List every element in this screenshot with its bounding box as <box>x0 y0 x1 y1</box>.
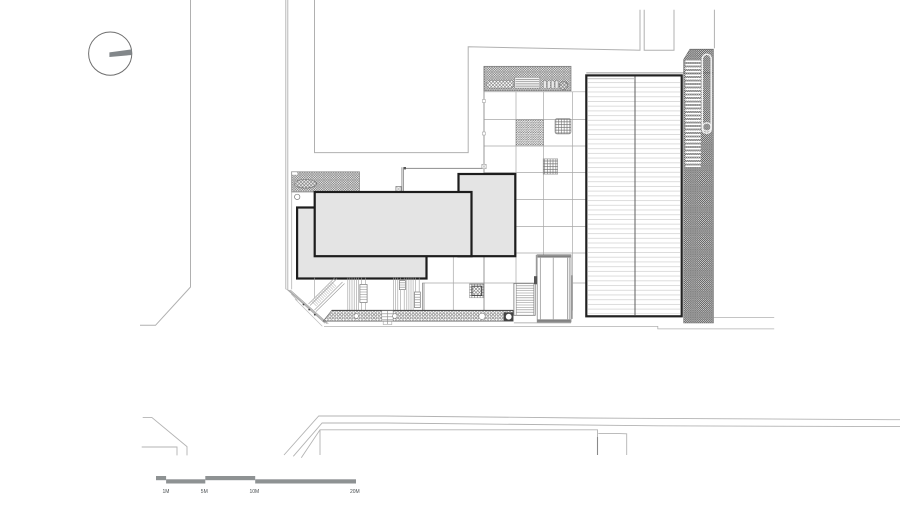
svg-text:5M: 5M <box>201 489 208 495</box>
svg-text:20M: 20M <box>350 489 360 495</box>
svg-text:10M: 10M <box>250 489 260 495</box>
svg-text:1M: 1M <box>163 489 170 495</box>
